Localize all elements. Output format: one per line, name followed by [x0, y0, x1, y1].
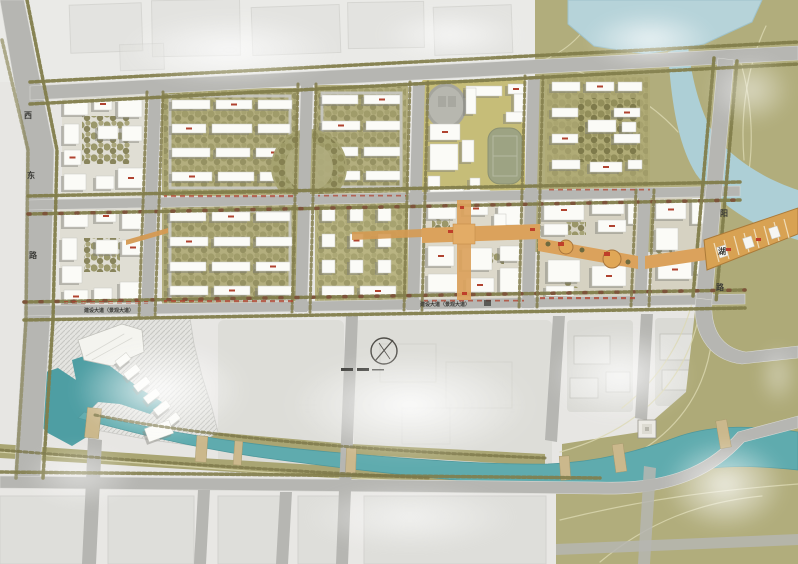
building: [62, 266, 82, 283]
block-name-labels: [546, 188, 650, 191]
axis-tree: [580, 248, 585, 253]
existing-city-block: [348, 1, 425, 48]
building: [656, 228, 678, 250]
axis-pavilion: [530, 228, 535, 231]
building-label-mark: [442, 131, 448, 133]
building: [322, 234, 335, 247]
faint-building: [606, 372, 630, 392]
building: [62, 238, 77, 260]
building: [64, 124, 79, 144]
building: [428, 274, 458, 292]
axis-pavilion: [756, 238, 761, 241]
building-label-mark: [103, 215, 109, 217]
avenue-name-label: 建设大道（景观大道）: [83, 307, 134, 314]
faint-building: [574, 336, 610, 364]
axis-pavilion: [604, 252, 610, 256]
building: [366, 121, 400, 130]
building: [552, 108, 578, 117]
building: [322, 286, 354, 296]
building: [500, 246, 520, 261]
block-name-labels: [164, 195, 296, 198]
river-bridge: [84, 407, 101, 438]
building-label-mark: [473, 208, 479, 210]
building-label-mark: [609, 225, 615, 227]
building-label-mark: [379, 99, 385, 101]
building: [506, 112, 524, 122]
building-label-mark: [606, 275, 612, 277]
building: [214, 237, 250, 246]
building: [552, 82, 580, 91]
building: [350, 208, 363, 221]
building: [212, 262, 250, 271]
building: [216, 148, 250, 157]
axis-segment: [457, 200, 471, 300]
building-label-mark: [375, 290, 381, 292]
building-label-mark: [231, 104, 237, 106]
building-label-mark: [186, 241, 192, 243]
building-label-mark: [130, 247, 136, 249]
road-label-icon: [484, 300, 491, 306]
existing-city-block: [251, 4, 341, 55]
building: [514, 94, 524, 112]
building: [322, 95, 358, 104]
block-name-labels: [540, 297, 636, 300]
building: [122, 126, 142, 141]
existing-city-block: [364, 496, 546, 564]
building: [64, 174, 86, 190]
road-name-west-char: 东: [27, 170, 35, 180]
building: [118, 100, 142, 117]
building-label-mark: [672, 269, 678, 271]
building: [218, 172, 254, 181]
master-plan-map: 西东路阳湖路建设大道（景观大道）建设大道（景观大道）: [0, 0, 798, 564]
building-label-mark: [189, 176, 195, 178]
building: [544, 224, 568, 235]
existing-city-block: [218, 496, 280, 564]
faint-building: [570, 378, 598, 398]
axis-pavilion: [462, 292, 467, 295]
building: [462, 140, 474, 162]
road-name-east-char: 阳: [720, 209, 728, 218]
building-label-mark: [438, 255, 444, 257]
axis-pavilion: [558, 242, 564, 246]
existing-city-block: [108, 496, 194, 564]
building-label-mark: [186, 128, 192, 130]
sports-court: [448, 96, 456, 107]
block-name-labels: [64, 301, 148, 304]
avenue-name-label: 建设大道（景观大道）: [419, 301, 470, 308]
building: [322, 260, 335, 273]
building: [618, 82, 642, 91]
axis-pavilion: [448, 230, 453, 233]
courtyard-green: [566, 222, 586, 235]
existing-city-block: [0, 496, 86, 564]
building-label-mark: [597, 86, 603, 88]
building-label-mark: [73, 296, 79, 298]
building-label-mark: [128, 177, 134, 179]
scale-bar: [357, 368, 369, 371]
building: [98, 126, 118, 139]
building: [258, 124, 290, 133]
building: [378, 260, 391, 273]
building: [588, 120, 616, 132]
building-label-mark: [228, 216, 234, 218]
block-name-labels: [318, 194, 406, 197]
building-label-mark: [229, 290, 235, 292]
building: [96, 240, 118, 254]
building: [256, 212, 290, 221]
building: [614, 134, 640, 143]
building: [364, 147, 400, 156]
axis-tree: [626, 260, 631, 265]
building: [350, 260, 363, 273]
road-name-east-char: 湖: [718, 246, 726, 256]
building: [212, 124, 252, 133]
building: [96, 176, 114, 189]
building: [172, 148, 210, 157]
building-label-mark: [624, 112, 630, 114]
building: [592, 198, 624, 214]
building: [494, 214, 506, 227]
sports-court: [438, 96, 446, 107]
building-label-mark: [603, 166, 609, 168]
axis-plaza: [453, 224, 475, 244]
pagoda-top: [645, 427, 649, 431]
building-label-mark: [513, 88, 519, 90]
plan-canvas: 西东路阳湖路建设大道（景观大道）建设大道（景观大道）: [0, 0, 798, 564]
existing-city-block: [152, 0, 241, 57]
block-name-labels: [164, 300, 296, 303]
existing-city-block: [120, 43, 165, 71]
axis-pavilion: [726, 248, 731, 251]
building: [170, 212, 206, 221]
axis-pavilion: [460, 206, 464, 209]
axis-tree: [546, 242, 551, 247]
building-label-mark: [70, 157, 76, 159]
river-bridge: [346, 448, 357, 474]
building-label-mark: [100, 103, 106, 105]
building-label-mark: [561, 209, 567, 211]
road-name-west-char: 路: [29, 250, 38, 260]
building-label-mark: [668, 209, 674, 211]
road-name-west-char: 西: [24, 111, 32, 120]
building: [258, 286, 292, 295]
building: [366, 171, 400, 180]
building: [258, 100, 292, 109]
building: [322, 208, 335, 221]
building: [256, 237, 292, 246]
building: [628, 160, 642, 169]
building: [622, 122, 636, 132]
building-label-mark: [338, 125, 344, 127]
river-bridge: [195, 436, 208, 463]
building: [466, 88, 476, 114]
building: [430, 144, 458, 170]
building: [172, 100, 210, 109]
road-name-east-char: 路: [716, 282, 725, 292]
building-label-mark: [477, 284, 483, 286]
building: [170, 262, 206, 271]
building-label-mark: [562, 138, 568, 140]
building: [552, 160, 580, 169]
existing-city-block: [433, 5, 513, 56]
building: [378, 208, 391, 221]
scale-bar: [372, 369, 384, 371]
building: [122, 212, 142, 229]
river-pier: [233, 441, 243, 465]
building: [548, 260, 580, 282]
scale-bar: [341, 368, 353, 371]
building-label-mark: [270, 266, 276, 268]
building: [170, 286, 208, 295]
